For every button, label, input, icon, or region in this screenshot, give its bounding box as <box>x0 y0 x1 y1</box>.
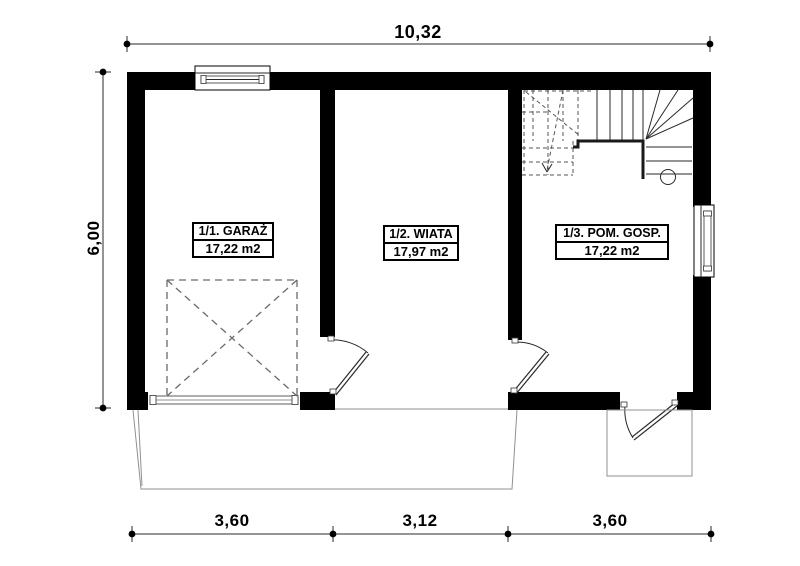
pom-gosp-right-window <box>694 205 714 277</box>
room-area: 17,22 m2 <box>194 241 272 256</box>
wiata-to-pom-gosp-door <box>511 338 549 394</box>
room-area: 17,22 m2 <box>557 243 667 258</box>
room-label-wiata: 1/2. WIATA 17,97 m2 <box>383 225 459 261</box>
room-name: 1/1. GARAŻ <box>194 224 272 241</box>
garage-clearance-dashed-x <box>167 280 297 396</box>
floor-plan-drawing <box>0 0 800 566</box>
dimension-total-height: 6,00 <box>84 208 104 268</box>
driveway-apron <box>133 410 517 489</box>
room-name: 1/2. WIATA <box>385 227 457 244</box>
room-label-pom-gosp: 1/3. POM. GOSP. 17,22 m2 <box>555 224 669 260</box>
dimension-bottom-garage: 3,60 <box>192 511 272 531</box>
dimension-bottom-pom-gosp: 3,60 <box>570 511 650 531</box>
entry-step <box>607 410 692 476</box>
garage-door <box>150 396 298 405</box>
room-label-garage: 1/1. GARAŻ 17,22 m2 <box>192 222 274 258</box>
garage-to-wiata-door <box>328 336 369 395</box>
garage-top-window <box>195 66 270 90</box>
dimension-bottom-wiata: 3,12 <box>380 511 460 531</box>
floor-plan-page: 10,32 6,00 3,60 3,12 3,60 1/1. GARAŻ 17,… <box>0 0 800 566</box>
pom-gosp-exterior-door <box>621 400 678 440</box>
room-area: 17,97 m2 <box>385 244 457 259</box>
dimension-total-width: 10,32 <box>378 22 458 43</box>
room-name: 1/3. POM. GOSP. <box>557 226 667 243</box>
staircase <box>522 90 693 185</box>
